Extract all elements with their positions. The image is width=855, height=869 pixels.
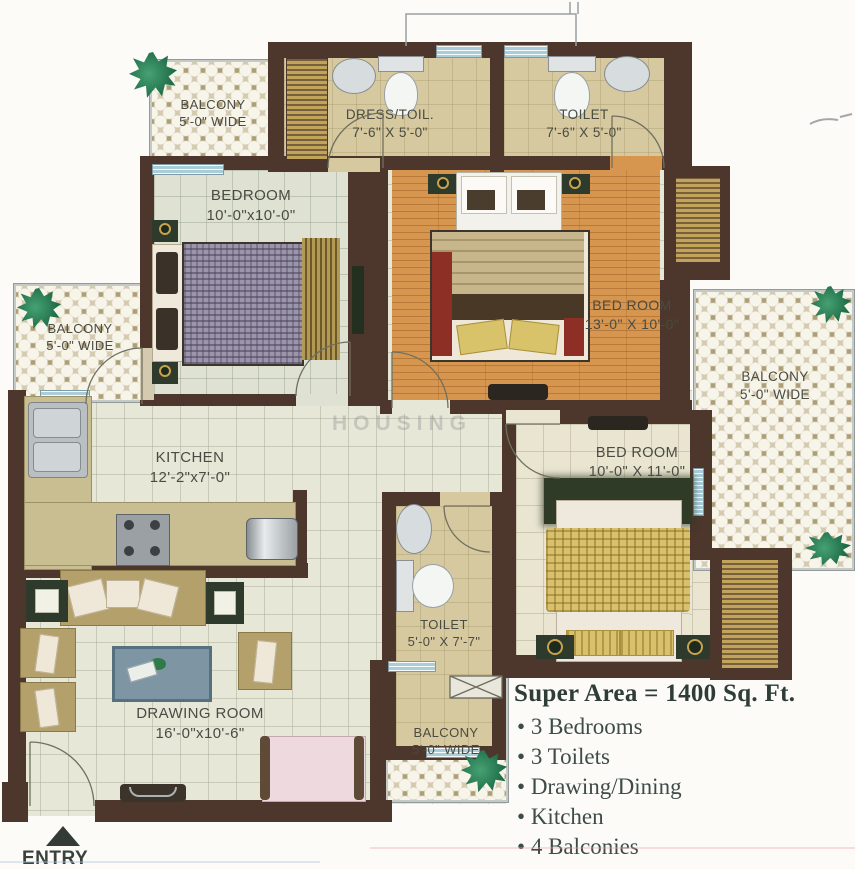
- pillow: [156, 308, 178, 350]
- door-gap: [296, 394, 348, 406]
- nightstand: [152, 362, 178, 384]
- wall: [95, 800, 392, 822]
- wall: [490, 42, 504, 172]
- rug: [302, 238, 340, 360]
- bed-drape: [432, 252, 452, 356]
- room-label-balcony-top-left: BALCONY5'-0" WIDE: [152, 96, 274, 131]
- room-label-bedroom-master: BED ROOM13'-0" X 10'-0": [576, 296, 688, 334]
- kitchen-sink: [33, 442, 81, 472]
- toilet-fixture: [548, 56, 596, 72]
- wall: [8, 578, 26, 784]
- bed-blanket: [432, 232, 584, 294]
- stove-burner: [124, 546, 134, 556]
- tv-unit-post: [354, 736, 364, 800]
- console-table: [120, 784, 186, 802]
- nightstand: [536, 635, 574, 659]
- room-label-kitchen: KITCHEN12'-2"x7'-0": [105, 448, 275, 488]
- entry-label: ENTRY: [22, 848, 88, 869]
- console-table: [588, 416, 648, 430]
- window: [436, 45, 482, 58]
- tv-unit-post: [260, 736, 270, 800]
- bed-blanket: [546, 528, 690, 612]
- window: [388, 661, 436, 672]
- floor-plan: BALCONY5'-0" WIDE DRESS/TOIL.7'-6" X 5'-…: [0, 0, 855, 869]
- armchair: [20, 628, 76, 678]
- window: [152, 164, 224, 175]
- door-gap: [440, 492, 490, 506]
- summary-item: 3 Bedrooms: [517, 714, 643, 740]
- wardrobe: [676, 178, 720, 262]
- door-gap: [610, 156, 662, 170]
- refrigerator: [246, 518, 298, 560]
- bed: [182, 242, 304, 366]
- nightstand: [560, 174, 590, 194]
- scan-line: [370, 847, 855, 849]
- toilet-fixture: [412, 564, 454, 608]
- nightstand: [676, 635, 714, 659]
- summary-item: 3 Toilets: [517, 744, 610, 770]
- stove-burner: [124, 520, 134, 530]
- pillow: [467, 190, 495, 210]
- kitchen-sink: [33, 408, 81, 438]
- duct-outline: [406, 2, 578, 46]
- side-table: [206, 582, 244, 624]
- wall: [664, 42, 692, 172]
- bottom-bg: [386, 804, 512, 824]
- room-label-drawing-room: DRAWING ROOM16'-0"x10'-6": [95, 704, 305, 744]
- summary-item: Kitchen: [517, 804, 604, 830]
- side-table: [26, 580, 68, 622]
- toilet-fixture: [378, 56, 424, 72]
- watermark: HOUSING: [332, 412, 472, 436]
- window: [504, 45, 548, 58]
- pillow: [566, 630, 620, 656]
- pillow: [508, 319, 559, 355]
- room-label-toilet-middle: TOILET5'-0" X 7'-7": [398, 616, 490, 651]
- balcony-right: [694, 290, 854, 570]
- wardrobe: [722, 560, 778, 668]
- wash-basin: [332, 58, 376, 94]
- room-label-bedroom-right: BED ROOM10'-0" X 11'-0": [552, 444, 722, 483]
- room-label-dress-toilet: DRESS/TOIL.7'-6" X 5'-0": [300, 106, 480, 142]
- pillow: [620, 630, 674, 656]
- bed-blanket: [432, 294, 584, 320]
- tv-unit: [262, 736, 366, 802]
- coffee-table: [112, 646, 212, 702]
- door-gap: [506, 410, 560, 424]
- summary-heading: Super Area = 1400 Sq. Ft.: [514, 680, 795, 708]
- console-table: [488, 384, 548, 400]
- entry-arrow-icon: [46, 826, 80, 846]
- room-label-balcony-right: BALCONY5'-0" WIDE: [706, 368, 844, 404]
- room-label-balcony-bottom: BALCONY5'-0" WIDE: [392, 724, 500, 759]
- stove-burner: [150, 546, 160, 556]
- wash-basin: [604, 56, 650, 92]
- nightstand: [428, 174, 458, 194]
- wall: [502, 410, 516, 658]
- scan-line: [0, 861, 320, 863]
- wall: [140, 394, 302, 406]
- stove-burner: [150, 520, 160, 530]
- wardrobe: [352, 266, 364, 334]
- pillow: [517, 190, 545, 210]
- armchair: [238, 632, 292, 690]
- wall: [2, 782, 28, 822]
- door-gap: [328, 158, 380, 172]
- sofa-cushion: [106, 580, 140, 608]
- summary-item: Drawing/Dining: [517, 774, 682, 800]
- room-label-bedroom-small: BEDROOM10'-0"x10'-0": [158, 186, 344, 226]
- wash-basin: [396, 504, 432, 554]
- armchair: [20, 682, 76, 732]
- pillow: [156, 252, 178, 294]
- room-label-toilet-top: TOILET7'-6" X 5'-0": [504, 106, 664, 142]
- room-label-balcony-left: BALCONY5'-0" WIDE: [20, 320, 140, 355]
- wall: [382, 492, 396, 760]
- print-smudge: [810, 114, 852, 124]
